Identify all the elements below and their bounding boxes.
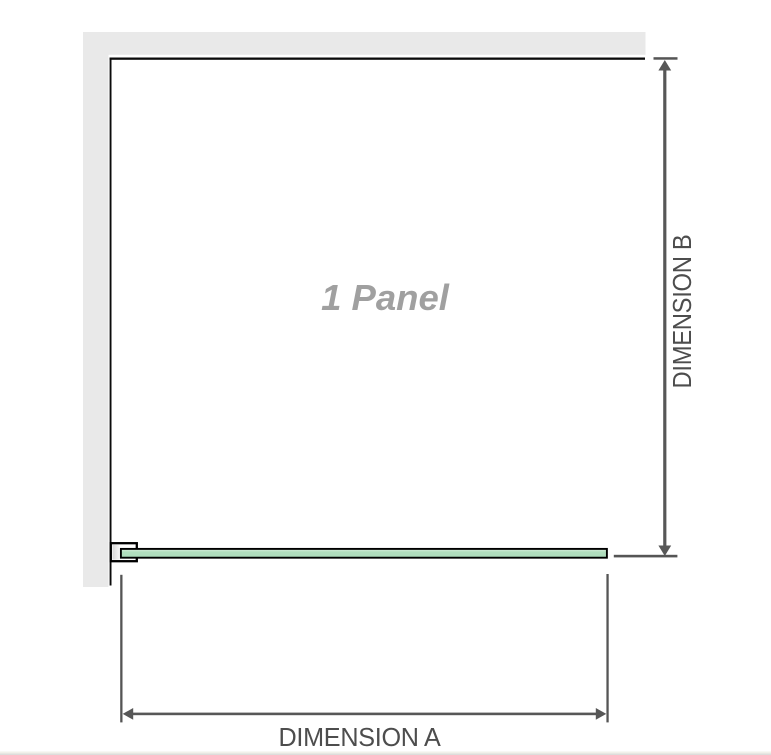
svg-text:DIMENSION A: DIMENSION A bbox=[279, 722, 442, 752]
svg-text:1 Panel: 1 Panel bbox=[321, 277, 450, 318]
svg-text:DIMENSION B: DIMENSION B bbox=[667, 235, 697, 389]
